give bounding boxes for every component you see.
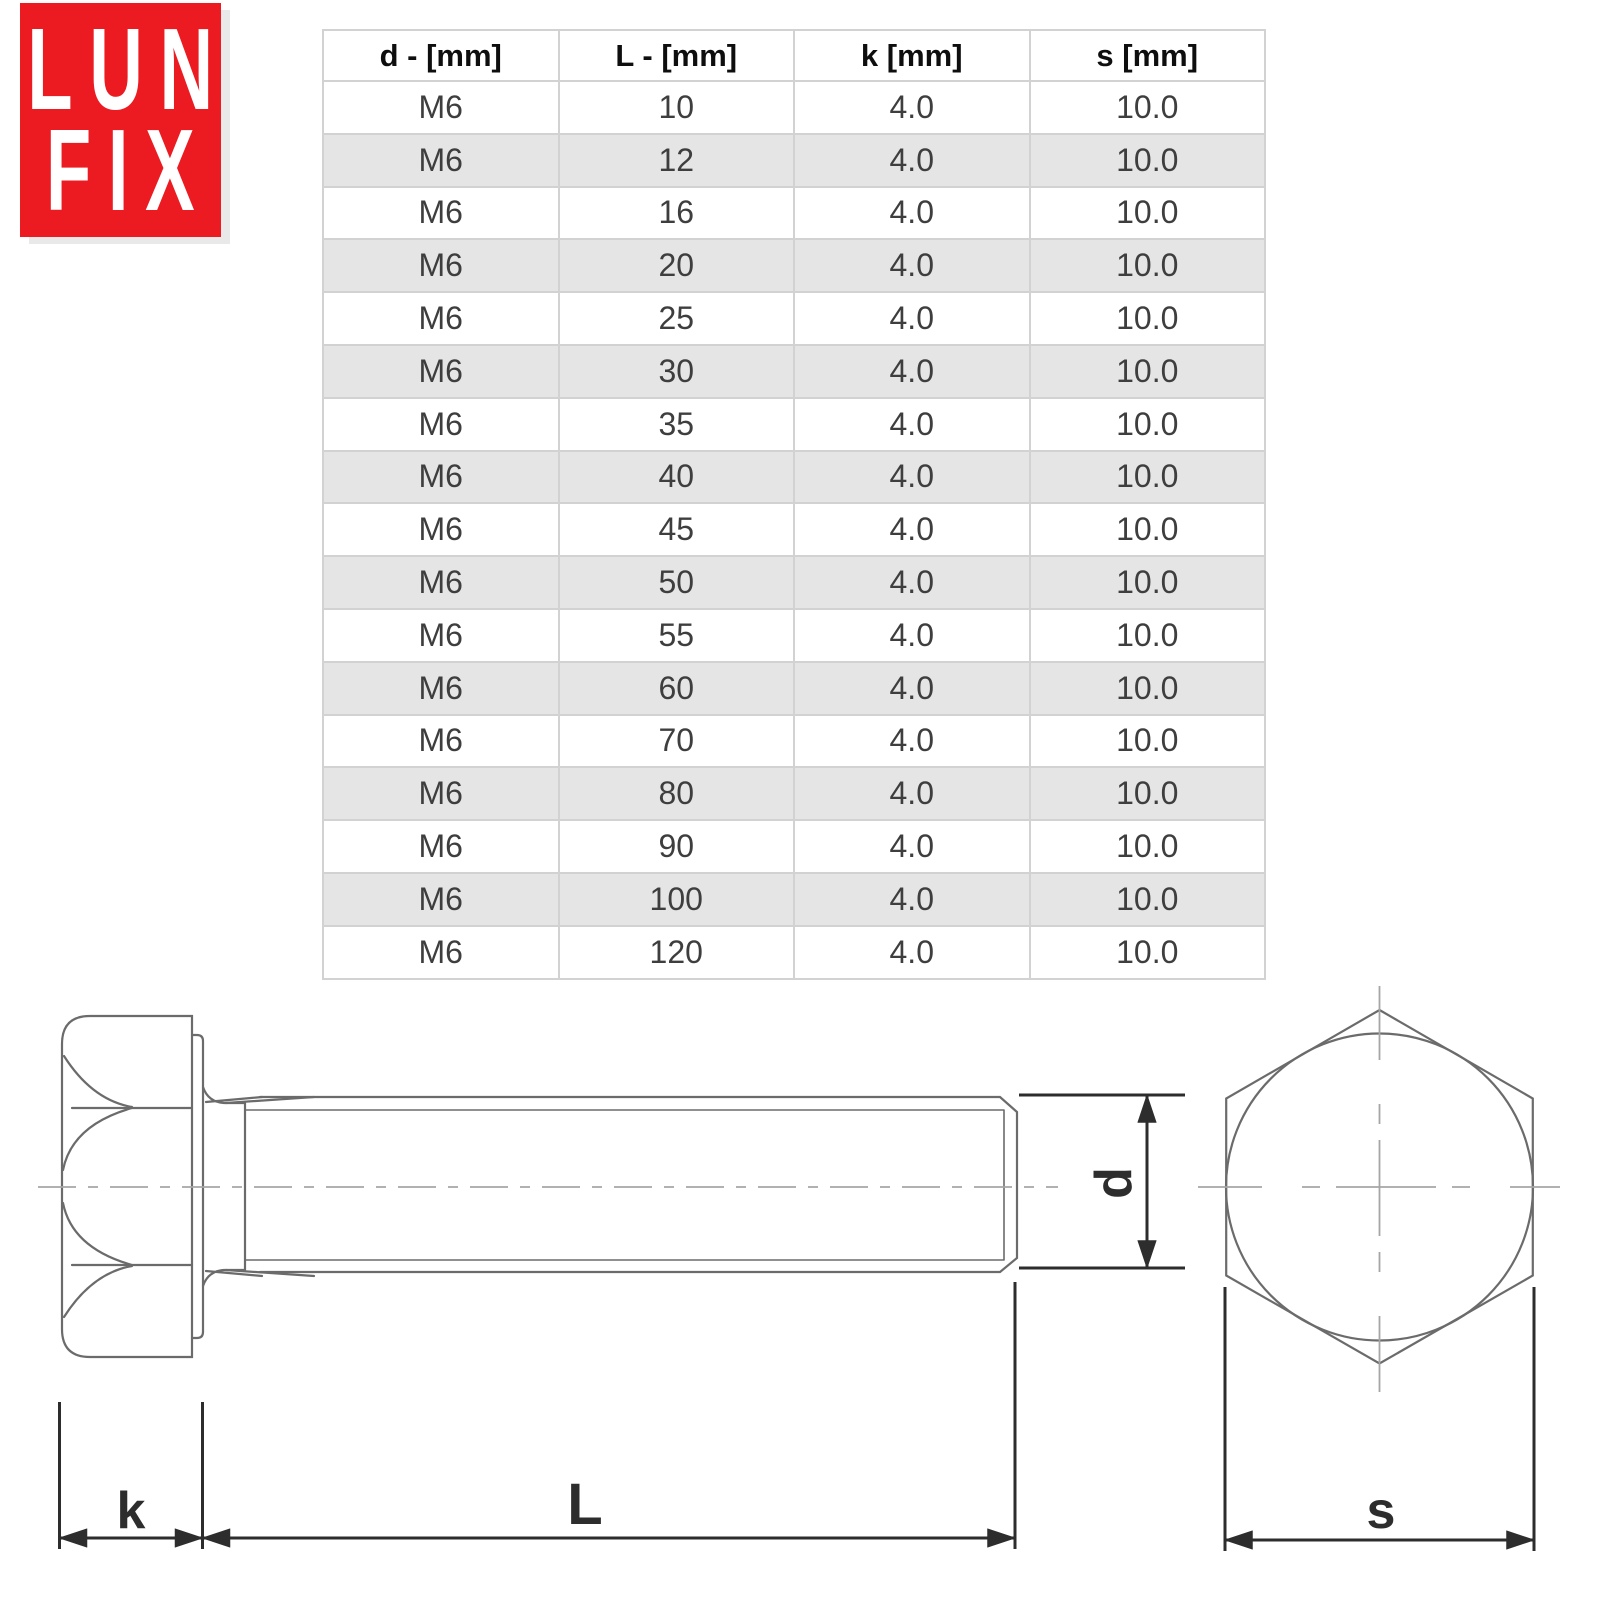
bolt-thread-minor-lines bbox=[246, 1110, 1004, 1260]
s-dimension-label: s bbox=[1367, 1482, 1396, 1540]
k-dimension-label: k bbox=[117, 1482, 146, 1540]
dimension-lines bbox=[60, 1095, 1535, 1551]
extension-lines bbox=[60, 1095, 1535, 1551]
l-dimension-label: L bbox=[567, 1472, 602, 1537]
d-dimension-label: d bbox=[1085, 1167, 1143, 1199]
bolt-shank-outline bbox=[260, 1097, 1017, 1272]
page: LUN FIX d - [mm]L - [mm]k [mm]s [mm] M61… bbox=[0, 0, 1600, 1600]
bolt-technical-drawing: k L d s bbox=[0, 0, 1600, 1600]
